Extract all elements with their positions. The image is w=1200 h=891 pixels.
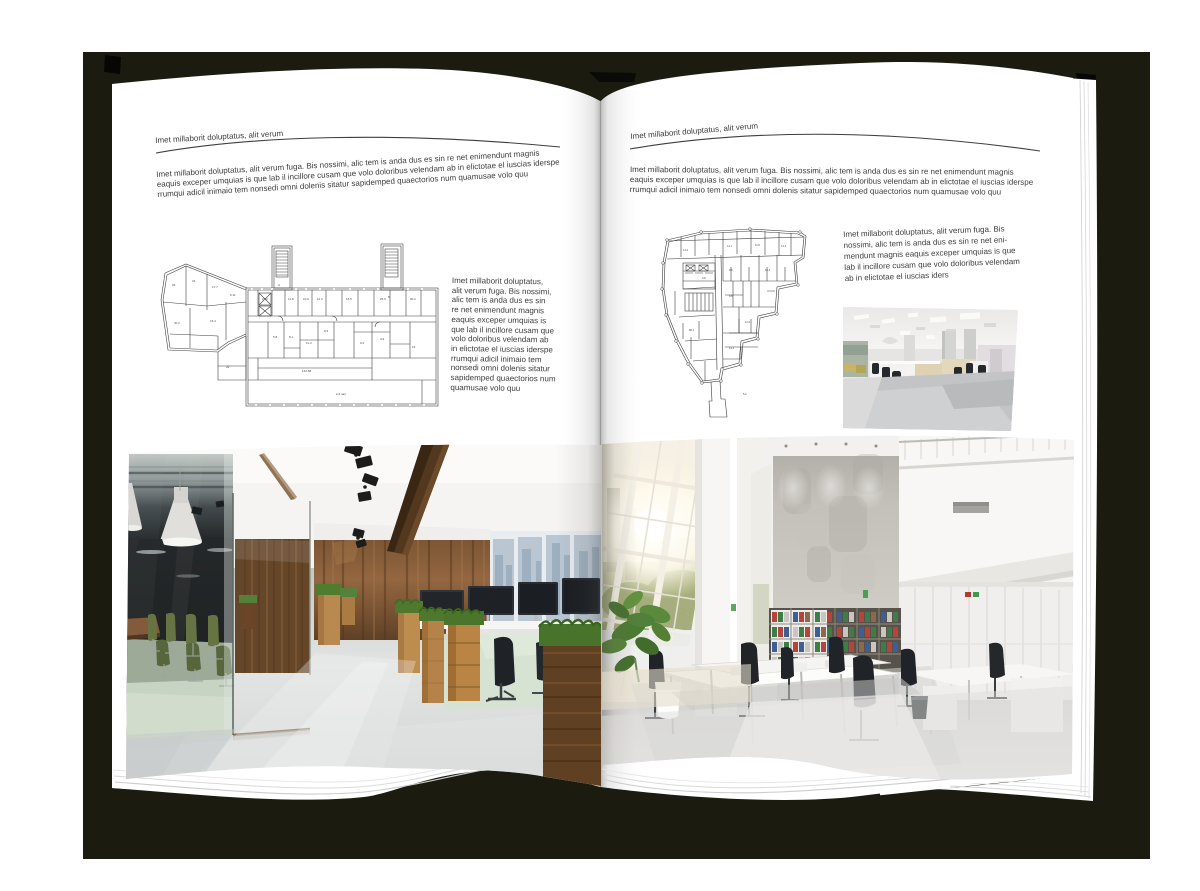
svg-text:5.8: 5.8 (273, 335, 278, 339)
svg-text:9.4: 9.4 (360, 341, 365, 345)
svg-text:11.8: 11.8 (755, 243, 760, 247)
svg-text:2.72: 2.72 (262, 297, 268, 301)
svg-text:11.3: 11.3 (317, 297, 323, 301)
svg-text:2.8: 2.8 (702, 276, 706, 280)
svg-text:31: 31 (192, 279, 196, 283)
svg-text:26.6: 26.6 (380, 297, 386, 301)
svg-text:12.1: 12.1 (727, 244, 733, 248)
svg-text:10.6: 10.6 (303, 297, 309, 301)
svg-text:10.2: 10.2 (765, 268, 771, 272)
svg-text:A: A (278, 283, 280, 287)
svg-text:5.11: 5.11 (230, 293, 236, 297)
svg-text:17.7: 17.7 (212, 285, 218, 289)
svg-text:40.2: 40.2 (174, 321, 180, 325)
svg-text:12.6: 12.6 (745, 320, 751, 324)
svg-text:16.4: 16.4 (210, 319, 216, 323)
svg-text:8.8: 8.8 (729, 294, 733, 298)
svg-text:2-й зал: 2-й зал (336, 392, 346, 396)
svg-text:Б: Б (388, 295, 390, 299)
svg-text:26: 26 (172, 283, 176, 287)
svg-text:142.68: 142.68 (302, 369, 312, 373)
svg-text:14.2: 14.2 (683, 248, 689, 252)
svg-text:11.2: 11.2 (306, 341, 312, 345)
svg-text:5.2: 5.2 (743, 392, 747, 396)
svg-text:9.6: 9.6 (729, 268, 733, 272)
svg-text:11.8: 11.8 (288, 297, 294, 301)
svg-text:8.1: 8.1 (289, 335, 294, 339)
svg-text:8.3: 8.3 (324, 329, 329, 333)
svg-text:16: 16 (412, 345, 416, 349)
svg-text:13.4: 13.4 (781, 244, 787, 248)
svg-text:29: 29 (226, 365, 230, 369)
svg-text:86.4: 86.4 (689, 328, 695, 332)
svg-text:14.1: 14.1 (729, 346, 735, 350)
svg-text:4.9: 4.9 (380, 337, 385, 341)
svg-text:16.5: 16.5 (346, 297, 352, 301)
svg-text:30.2: 30.2 (410, 297, 416, 301)
